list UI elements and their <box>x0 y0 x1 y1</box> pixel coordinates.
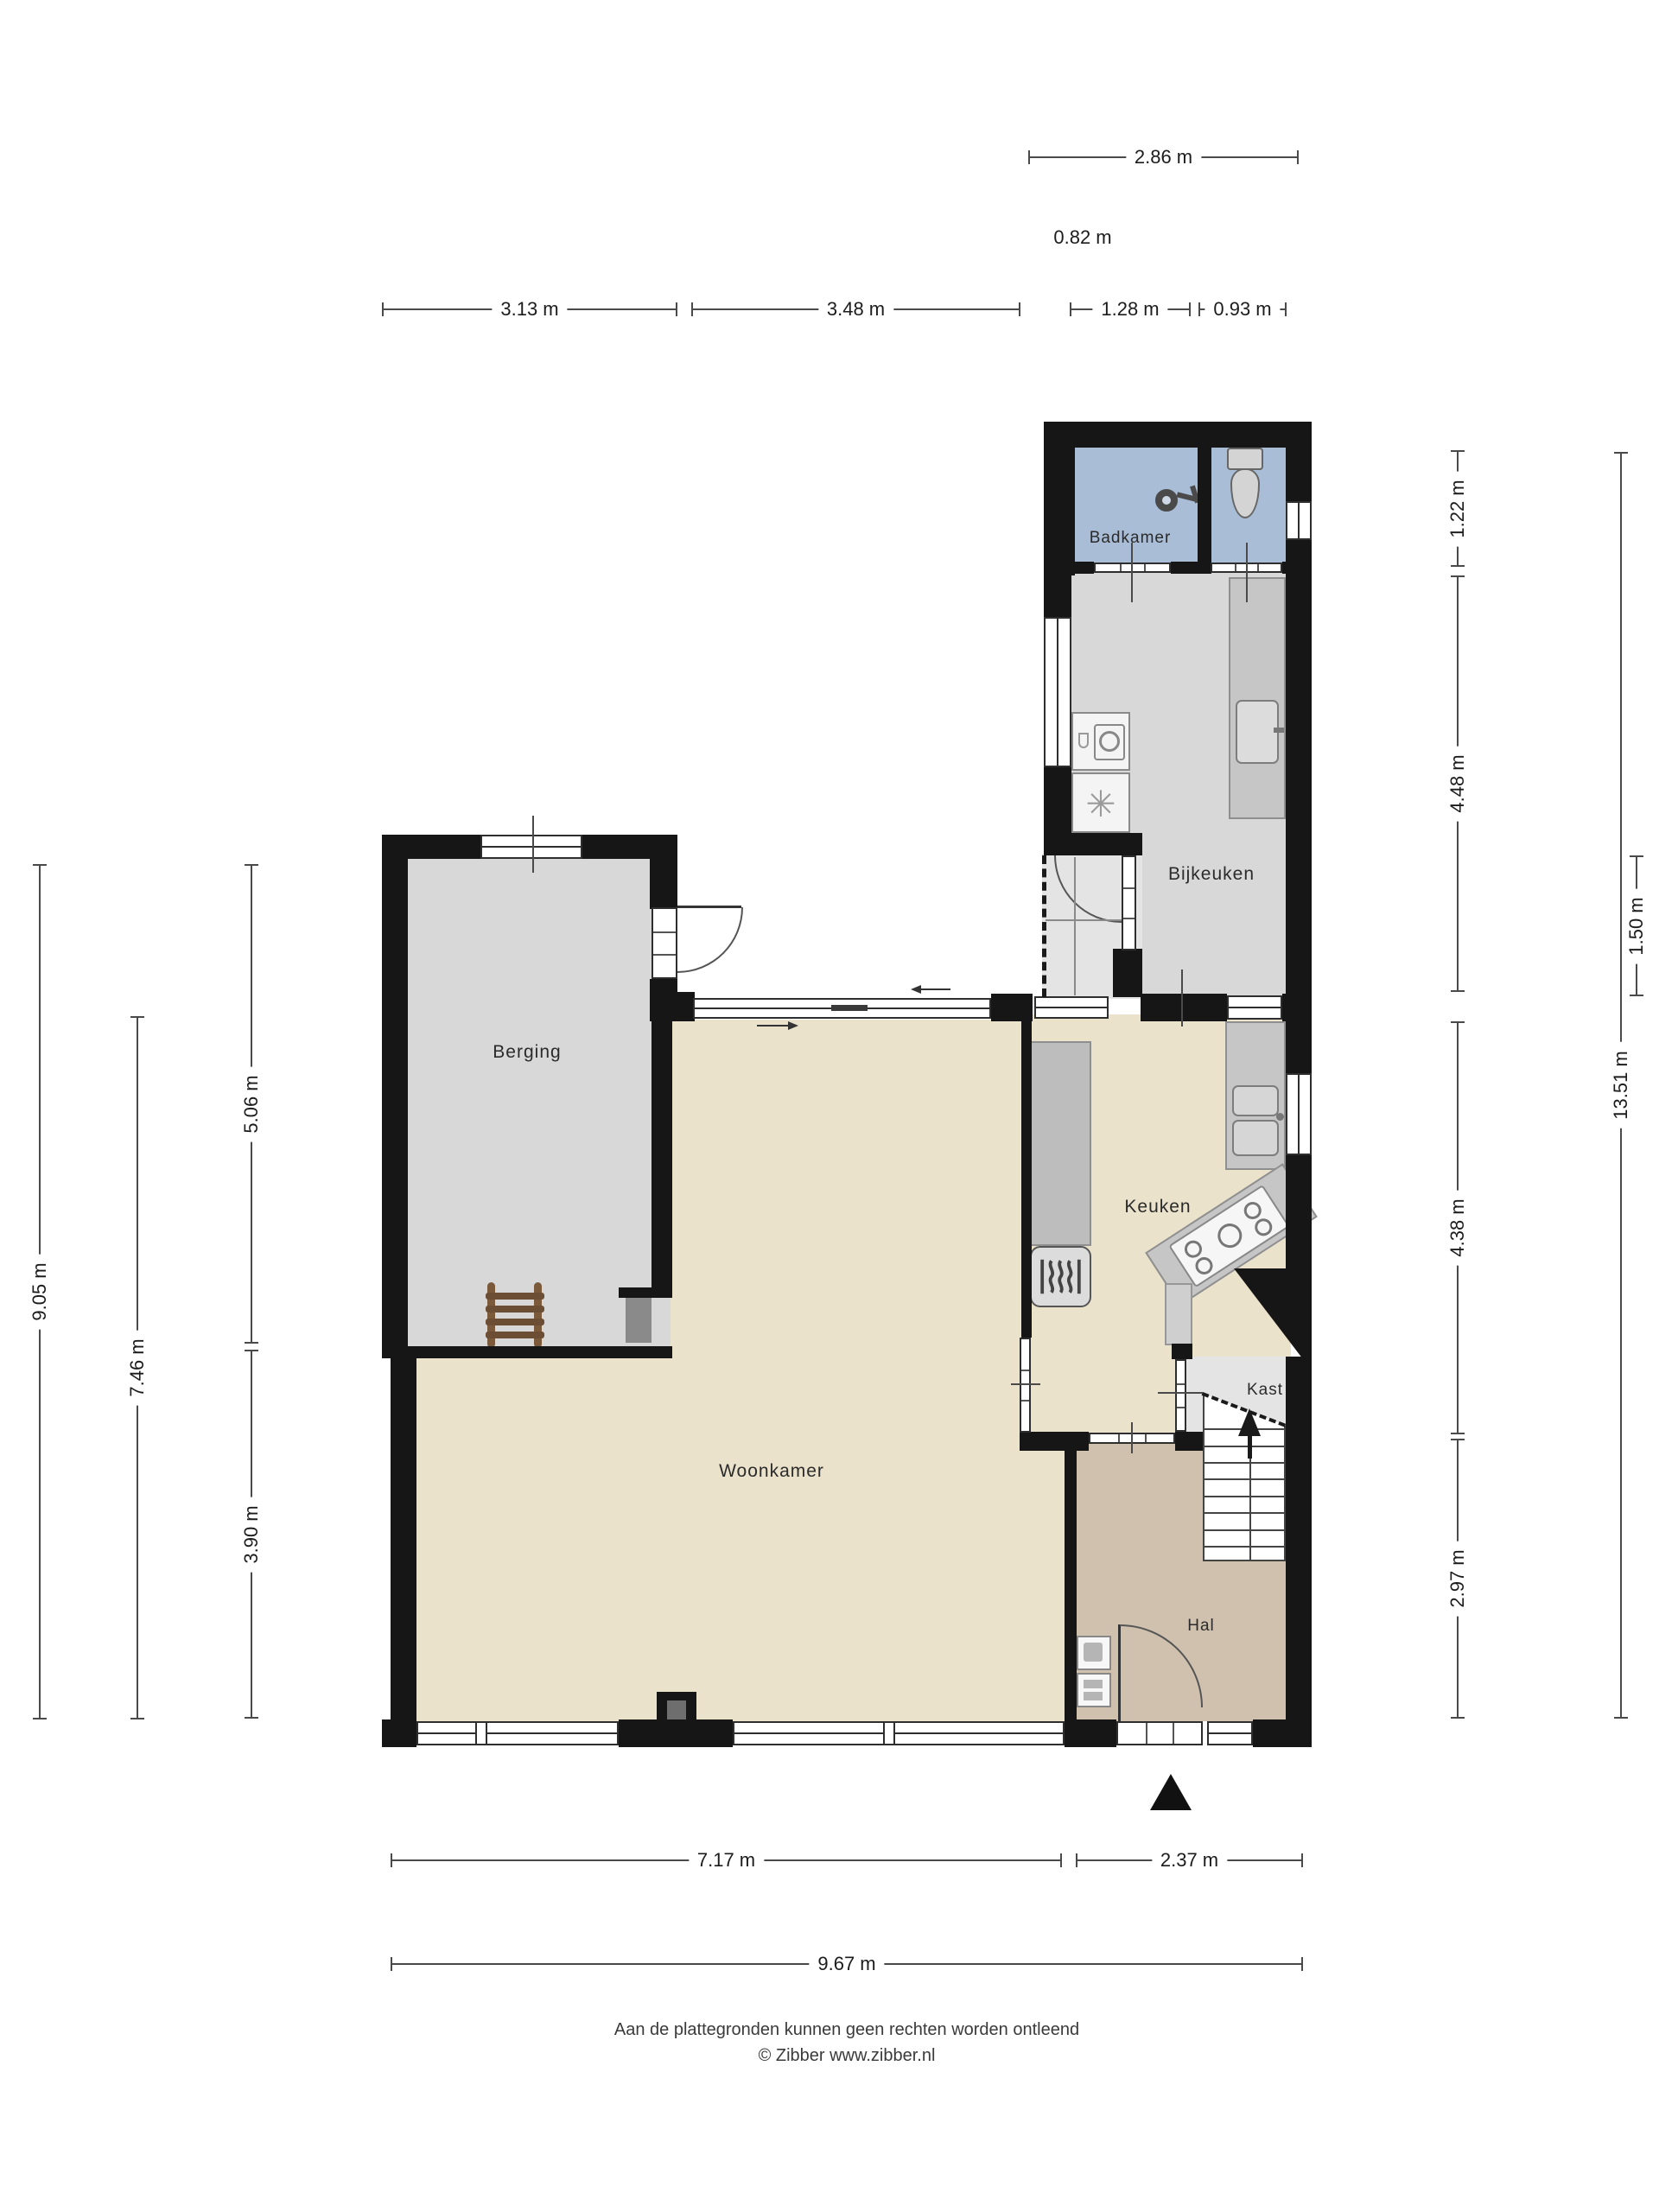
dimension: 0.93 m <box>1198 308 1287 310</box>
wall <box>1286 1357 1312 1721</box>
dimension: 7.17 m <box>391 1859 1062 1861</box>
door-opening <box>1122 855 1136 950</box>
dimension: 3.13 m <box>382 308 677 310</box>
dimension-label: 0.82 m <box>1031 226 1135 249</box>
wall <box>650 855 677 909</box>
wall <box>1172 1344 1192 1359</box>
wall <box>382 1719 416 1747</box>
window-mullion <box>883 1723 895 1744</box>
tick <box>1181 969 1183 1027</box>
window <box>1207 1721 1253 1745</box>
washing-machine-icon <box>1071 712 1130 771</box>
dryer-icon: ✳ <box>1071 772 1130 833</box>
keuken-step <box>1165 1283 1192 1345</box>
front-door-opening <box>1116 1721 1203 1745</box>
tick <box>1246 543 1248 602</box>
door-guide <box>1046 919 1122 921</box>
entrance-arrow-icon <box>1150 1774 1192 1810</box>
doormat <box>626 1298 652 1343</box>
window <box>1286 1073 1312 1155</box>
sliding-door-panel <box>831 1005 868 1011</box>
door-opening <box>1175 1359 1186 1432</box>
dimension: 13.51 m <box>1620 452 1622 1719</box>
wall <box>1044 562 1094 574</box>
tick <box>1011 1383 1040 1385</box>
berging-floor <box>406 857 674 1346</box>
window <box>1044 617 1071 767</box>
disclaimer-text: Aan de plattegronden kunnen geen rechten… <box>391 2020 1303 2040</box>
woonkamer-floor <box>671 1020 1033 1358</box>
dimension: 3.48 m <box>691 308 1020 310</box>
dimension: 1.22 m <box>1457 450 1459 567</box>
wall <box>1044 422 1312 448</box>
keuken-counter <box>1030 1041 1091 1246</box>
room-label-keuken: Keuken <box>1124 1197 1191 1217</box>
dimension: 4.38 m <box>1457 1021 1459 1434</box>
door-opening <box>652 907 677 979</box>
wall <box>652 1021 672 1293</box>
wall <box>1065 1719 1116 1747</box>
wall <box>382 835 408 1358</box>
wall <box>1065 1449 1077 1721</box>
radiator-icon <box>1030 1246 1091 1307</box>
wall <box>1171 562 1211 574</box>
wall <box>619 1719 733 1747</box>
window <box>1286 501 1312 540</box>
wall <box>1044 574 1071 619</box>
woonkamer-floor <box>408 1348 1075 1721</box>
dimension: 1.28 m <box>1070 308 1191 310</box>
room-label-woonkamer: Woonkamer <box>719 1461 824 1482</box>
wall <box>1286 444 1312 501</box>
window <box>416 1721 619 1745</box>
wall <box>1044 422 1075 575</box>
door-guide <box>1074 857 1076 995</box>
wall <box>1198 444 1211 574</box>
wall <box>1282 994 1312 1021</box>
sink-icon <box>1236 700 1279 764</box>
copyright-text: © Zibber www.zibber.nl <box>391 2046 1303 2066</box>
tick <box>532 816 534 873</box>
wall <box>1113 949 1142 997</box>
wall <box>619 1287 672 1298</box>
tick <box>1131 543 1133 602</box>
faucet-icon <box>1276 1113 1284 1121</box>
room-label-hal: Hal <box>1187 1617 1215 1636</box>
wall <box>1253 1719 1312 1747</box>
dimension: 4.48 m <box>1457 575 1459 992</box>
door-opening <box>1020 1338 1031 1433</box>
window <box>480 835 582 859</box>
open-boundary-dashed <box>1042 855 1046 997</box>
tick <box>1158 1392 1203 1394</box>
door-swing-arc <box>677 907 743 973</box>
faucet-icon <box>1274 728 1284 733</box>
wall <box>650 979 677 1021</box>
wall <box>1282 562 1312 574</box>
wall <box>1286 1155 1312 1270</box>
tick <box>1131 1422 1133 1453</box>
window <box>1034 996 1109 1019</box>
dimension: 7.46 m <box>137 1016 138 1719</box>
room-label-berging: Berging <box>493 1042 561 1063</box>
dimension: 1.50 m <box>1636 855 1637 996</box>
dimension: 2.97 m <box>1457 1439 1459 1719</box>
sink-icon <box>1232 1120 1279 1156</box>
floorplan-canvas: ✳ <box>0 0 1659 2212</box>
dimension: 9.67 m <box>391 1963 1303 1965</box>
wall <box>1141 994 1227 1021</box>
bijkeuken-counter <box>1229 577 1286 819</box>
sink-icon <box>1232 1085 1279 1116</box>
wall <box>1044 767 1071 855</box>
wall <box>1175 1432 1203 1451</box>
wall <box>1021 994 1032 1338</box>
dimension: 3.90 m <box>251 1350 252 1719</box>
wall <box>1020 1432 1089 1451</box>
room-label-badkamer: Badkamer <box>1090 529 1172 548</box>
window <box>733 1721 1065 1745</box>
chimney-flue <box>667 1700 686 1719</box>
room-label-bijkeuken: Bijkeuken <box>1168 864 1255 885</box>
window-mullion <box>475 1723 487 1744</box>
wall <box>1071 833 1142 855</box>
dimension: 2.86 m <box>1028 156 1299 158</box>
wall <box>382 1346 672 1358</box>
wall <box>391 1358 416 1721</box>
dimension: 5.06 m <box>251 864 252 1344</box>
dimension: 9.05 m <box>39 864 41 1719</box>
dimension: 2.37 m <box>1076 1859 1303 1861</box>
window <box>1227 995 1282 1020</box>
room-label-kast: Kast <box>1247 1381 1283 1400</box>
